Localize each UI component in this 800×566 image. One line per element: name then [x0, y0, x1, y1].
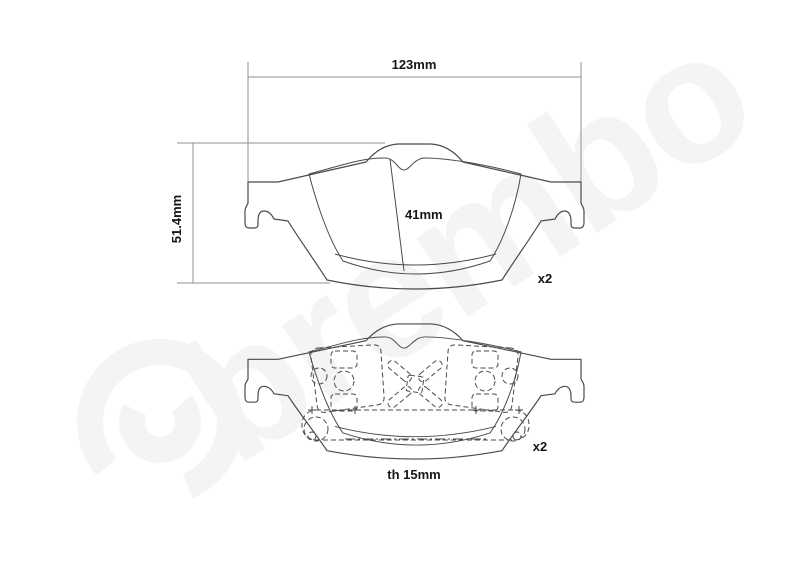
brembo-watermark: brembo	[61, 0, 783, 521]
drawing-canvas: brembo	[0, 0, 800, 566]
technical-drawing-svg: brembo	[0, 0, 800, 566]
quantity-label-rear: x2	[533, 439, 547, 454]
shim-hole-right	[475, 371, 495, 391]
thickness-label: th 15mm	[387, 467, 440, 482]
quantity-label-front: x2	[538, 271, 552, 286]
pad-height-label: 41mm	[405, 207, 443, 222]
brembo-watermark-text: brembo	[147, 0, 783, 500]
width-dimension-label: 123mm	[392, 57, 437, 72]
height-dimension-label: 51.4mm	[169, 195, 184, 243]
